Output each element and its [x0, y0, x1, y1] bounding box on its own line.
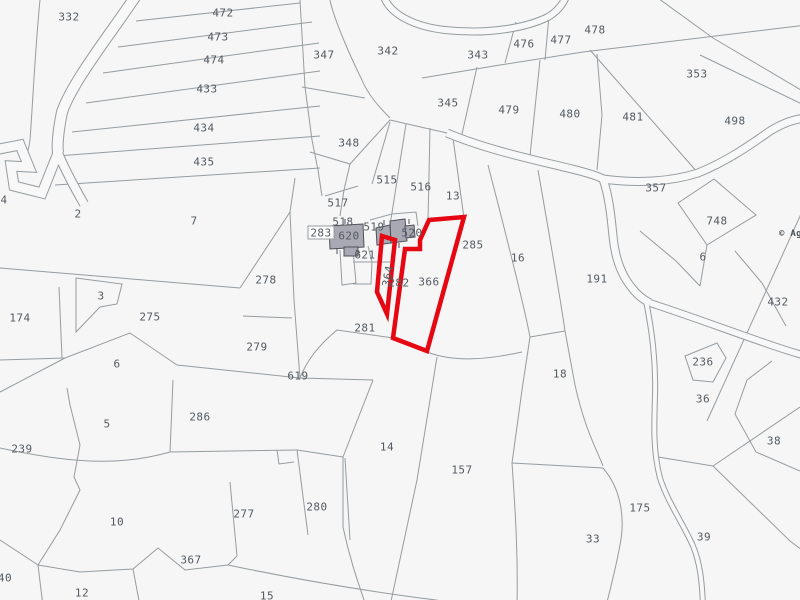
parcel-boundary: [603, 468, 622, 600]
parcel-boundary: [240, 178, 295, 288]
parcel-boundary: [428, 128, 430, 221]
parcel-label: 357: [645, 182, 666, 195]
parcel-boundary: [170, 380, 173, 452]
parcel-label: 619: [287, 370, 308, 383]
parcel-boundary: [545, 16, 549, 60]
parcel-label: 6: [699, 251, 706, 264]
parcel-label: 474: [203, 54, 224, 67]
parcel-boundary: [452, 131, 464, 218]
parcel-boundary: [0, 540, 38, 565]
parcel-boundary: [228, 556, 237, 565]
parcel-boundary: [55, 168, 320, 185]
road-surface: [603, 118, 800, 181]
parcel-boundary: [640, 231, 700, 286]
parcel-label: 519: [363, 221, 384, 234]
copyright-attribution: © Age: [779, 229, 800, 239]
parcel-label: 345: [437, 97, 458, 110]
parcel-boundary: [300, 378, 373, 380]
road-surface: [646, 301, 703, 600]
road-surface: [383, 0, 567, 32]
parcel-label: 433: [196, 83, 217, 96]
parcel-label: 367: [180, 554, 201, 567]
parcel-label: 285: [462, 239, 483, 252]
parcel-label: 332: [58, 11, 79, 24]
parcel-label: 7: [190, 215, 197, 228]
parcel-boundary: [290, 212, 300, 378]
parcel-label: 277: [233, 508, 254, 521]
parcel-label: 12: [75, 587, 89, 600]
parcel-boundary: [38, 565, 43, 600]
parcel-boundary: [735, 380, 800, 471]
parcel-label: 3: [97, 290, 104, 303]
parcel-boundary: [713, 407, 800, 466]
parcel-label: 748: [706, 215, 727, 228]
parcel-boundary: [0, 268, 240, 288]
parcel-boundary: [302, 87, 365, 98]
parcel-label: 473: [207, 31, 228, 44]
parcel-label-boxed: 283: [310, 227, 331, 240]
parcel-boundary: [390, 357, 437, 600]
parcel-boundary: [133, 569, 140, 600]
parcel-boundary: [460, 67, 477, 143]
cadastral-map[interactable]: 3324724734744334344353473423434764774783…: [0, 0, 800, 600]
parcel-label: 236: [692, 356, 713, 369]
parcel-boundary: [390, 120, 447, 133]
parcel-boundary: [658, 457, 713, 466]
parcel-boundary: [735, 251, 786, 326]
parcel-boundary: [678, 179, 756, 245]
parcel-label: 175: [629, 502, 650, 515]
parcel-label: 477: [550, 34, 571, 47]
parcel-boundary: [488, 165, 530, 600]
parcel-label: 516: [410, 181, 431, 194]
parcel-label: 517: [327, 197, 348, 210]
parcel-label: 191: [586, 273, 607, 286]
parcel-label: 472: [212, 7, 233, 20]
parcel-boundary: [747, 361, 772, 380]
parcel-label: 281: [354, 322, 375, 335]
parcel-boundary: [512, 463, 603, 468]
parcel-label: 342: [377, 45, 398, 58]
parcel-label: 157: [451, 464, 472, 477]
parcel-label: 479: [498, 104, 519, 117]
parcel-label: 40: [0, 572, 12, 585]
parcel-label: 366: [418, 276, 439, 289]
parcel-boundary: [170, 450, 297, 452]
parcel-boundary: [343, 380, 373, 457]
parcel-boundary: [59, 287, 62, 358]
parcel-label: 36: [696, 393, 710, 406]
parcel-boundary: [243, 316, 292, 318]
parcel-label: 432: [767, 296, 788, 309]
parcel-label: 16: [511, 252, 525, 265]
parcel-boundary: [277, 450, 294, 464]
parcel-boundary: [297, 450, 308, 535]
parcel-label: 2: [74, 208, 81, 221]
parcel-boundary: [57, 136, 320, 156]
parcel-boundary: [76, 278, 122, 332]
parcel-boundary: [0, 358, 65, 392]
parcel-label: 518: [332, 216, 353, 229]
road-surface: [58, 153, 84, 204]
parcel-label: 620: [338, 230, 359, 243]
parcel-boundary: [318, 170, 322, 196]
road-surface: [603, 179, 650, 303]
parcel-label: 13: [446, 190, 460, 203]
parcel-boundary: [597, 54, 602, 170]
parcel-boundary: [330, 0, 390, 118]
parcel-label: 353: [686, 68, 707, 81]
parcel-boundary: [713, 466, 800, 553]
parcel-label: 434: [193, 122, 214, 135]
parcel-boundary: [530, 60, 540, 156]
parcel-boundary: [655, 0, 800, 93]
parcel-label: 10: [110, 516, 124, 529]
parcel-labels-layer: 3324724734744334344353473423434764774783…: [0, 7, 800, 600]
road-casing: [383, 0, 567, 32]
road-surface: [447, 133, 603, 179]
parcel-label: 621: [354, 249, 375, 262]
parcel-boundary: [530, 331, 565, 337]
parcel-boundary: [538, 170, 603, 466]
parcel-label: 33: [586, 533, 600, 546]
parcel-label: 38: [767, 435, 781, 448]
parcel-label: 39: [697, 531, 711, 544]
parcel-label: 279: [246, 341, 267, 354]
parcel-boundary: [345, 458, 350, 540]
parcel-boundary: [0, 333, 177, 365]
parcel-label: 5: [103, 418, 110, 431]
parcel-label: 280: [306, 501, 327, 514]
parcel-boundary: [297, 450, 343, 457]
parcel-boundary: [300, 0, 318, 170]
parcel-boundary: [300, 330, 393, 378]
parcel-label: 476: [513, 38, 534, 51]
parcel-label: 347: [313, 49, 334, 62]
parcel-label: 343: [467, 49, 488, 62]
parcel-label: 480: [559, 108, 580, 121]
parcel-label: 6: [113, 358, 120, 371]
parcel-boundary: [427, 352, 522, 359]
parcel-label: 348: [338, 137, 359, 150]
parcel-label: 498: [724, 115, 745, 128]
cadastral-map-viewport[interactable]: 3324724734744334344353473423434764774783…: [0, 0, 800, 600]
parcel-label: 286: [189, 411, 210, 424]
parcel-boundary: [177, 365, 300, 378]
parcel-boundary: [38, 388, 80, 565]
parcel-label: 15: [260, 590, 274, 600]
parcel-label: 174: [9, 312, 30, 325]
parcel-boundary: [590, 50, 698, 173]
parcel-label: 14: [380, 441, 394, 454]
parcel-label: 239: [11, 443, 32, 456]
parcel-label: 515: [376, 174, 397, 187]
parcel-label: 481: [622, 111, 643, 124]
parcel-label: 520: [401, 227, 422, 240]
parcel-label: 478: [584, 24, 605, 37]
parcel-boundary: [325, 186, 358, 196]
parcel-label: 18: [553, 368, 567, 381]
parcel-label: 435: [193, 156, 214, 169]
parcel-label: 278: [255, 274, 276, 287]
parcel-label: 4: [0, 194, 7, 207]
parcel-label: 275: [139, 311, 160, 324]
